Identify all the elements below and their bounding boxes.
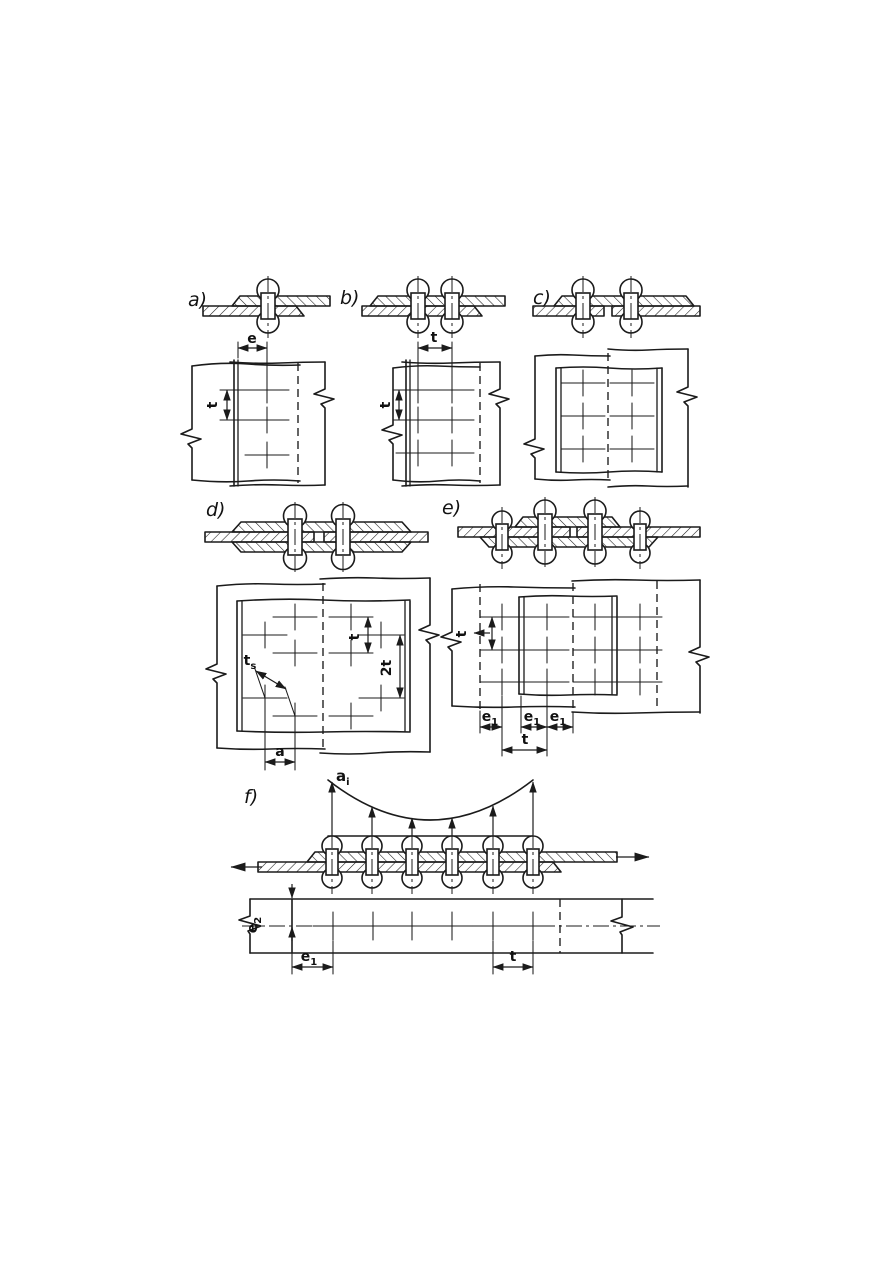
rivet-symbol	[584, 497, 606, 569]
dim-ts-label: ts	[244, 653, 257, 672]
rivet-cross	[430, 377, 474, 403]
dim-2t: 2t	[379, 635, 404, 698]
rivet-cross	[561, 370, 605, 396]
rivet-cross	[273, 604, 317, 630]
rivet-cross	[480, 604, 524, 630]
break-line-right	[419, 578, 439, 752]
rivet-cross	[430, 407, 474, 433]
dim-t-label: t	[431, 330, 438, 346]
dim-t-label: t	[205, 401, 221, 408]
break-line-left	[382, 368, 402, 480]
dim-e2-label: e2	[245, 917, 264, 934]
dim-a-label: a	[275, 744, 284, 760]
dim-t-left: t	[454, 617, 492, 650]
figure-e-label: e)	[442, 497, 461, 519]
load-distribution-diagram: ai	[328, 767, 533, 836]
dim-t-label: t	[522, 732, 529, 748]
rivet-cross	[243, 685, 287, 711]
rivet-cross	[525, 604, 569, 630]
figure-b-plan-view: t t	[378, 330, 509, 486]
figure-d-label: d)	[206, 499, 225, 521]
rivet-cross	[573, 669, 617, 695]
dim-t-label: t	[510, 949, 517, 965]
figure-d-cross-section	[205, 522, 428, 552]
rivet-cross	[245, 377, 289, 403]
figure-b-cross-section	[362, 296, 505, 316]
rivet-cross	[480, 637, 524, 663]
break-line-right	[689, 580, 709, 713]
rivet-symbol	[441, 276, 463, 338]
dim-e-label: e	[247, 331, 257, 347]
dim-t: t	[493, 941, 533, 974]
break-line-right	[489, 362, 509, 485]
rivet-cross	[525, 669, 569, 695]
rivet-cross	[245, 442, 289, 468]
rivet-cross	[359, 622, 403, 648]
dim-e1: e1	[292, 941, 333, 974]
dim-t-label: t	[454, 630, 470, 637]
dim-ts-diagonal: ts	[244, 653, 295, 716]
dim-e: e	[238, 331, 267, 377]
dim-2t-label: 2t	[379, 659, 395, 676]
rivet-cross	[618, 604, 662, 630]
figure-c-cross-section	[533, 296, 700, 316]
dim-t-label: t	[347, 633, 363, 640]
dims-bottom: e1 e1 e1 t	[480, 696, 573, 756]
figure-b-label: b)	[340, 287, 359, 309]
rivet-cross	[610, 370, 654, 396]
rivet-cross	[430, 440, 474, 466]
rivet-cross	[610, 436, 654, 462]
rivet-cross	[573, 637, 617, 663]
dim-e1-label: e1	[482, 709, 499, 728]
rivet-symbol	[257, 276, 279, 338]
rivet-cross	[525, 637, 569, 663]
dim-e1-label: e1	[524, 709, 541, 728]
rivet-symbol	[620, 276, 642, 338]
break-line-right	[677, 349, 697, 487]
load-curve	[328, 780, 533, 820]
figure-c: c)	[524, 287, 700, 487]
rivet-cross	[243, 622, 287, 648]
rivet-cross	[432, 912, 472, 940]
rivet-cross	[618, 637, 662, 663]
figure-f-cross-section	[231, 852, 649, 872]
figure-e: e)	[441, 497, 709, 756]
engineering-drawing: a) e t	[0, 0, 893, 1263]
rivet-cross	[573, 604, 617, 630]
rivet-cross	[359, 685, 403, 711]
break-line-right	[314, 362, 334, 485]
rivet-cross	[618, 669, 662, 695]
figure-d: d)	[205, 499, 439, 770]
rivet-symbol	[572, 276, 594, 338]
figure-f-plan-view: e2 e1 t	[239, 884, 660, 974]
dim-e1-label: e1	[550, 709, 567, 728]
break-line-left	[524, 356, 544, 479]
rivet-cross	[313, 912, 353, 940]
dim-t-left: t	[378, 390, 428, 420]
load-label: ai	[336, 767, 350, 788]
figure-a-plan-view: e t	[181, 331, 334, 486]
rivet-cross	[273, 640, 317, 666]
rivet-cross	[480, 669, 524, 695]
rivet-symbol	[534, 497, 556, 569]
dim-t-label: t	[378, 401, 394, 408]
dim-t-left: t	[205, 390, 246, 420]
rivet-cross	[513, 912, 553, 940]
figure-e-plan-view: t e1 e1 e1 t	[441, 580, 709, 756]
rivet-cross	[329, 640, 373, 666]
figure-f-label: f)	[244, 786, 258, 808]
rivet-cross	[329, 703, 373, 729]
document-page: a) e t	[0, 0, 893, 1263]
rivet-cross	[245, 407, 289, 433]
dim-t-top: t	[418, 330, 452, 377]
load-distribution-arrows	[332, 782, 533, 835]
break-line-left	[441, 589, 461, 706]
rivet-cross	[561, 436, 605, 462]
figure-c-plan-view	[524, 349, 697, 487]
rivet-cross	[329, 604, 373, 630]
figure-d-plan-view: ts t 2t a	[206, 578, 439, 770]
rivet-cross	[610, 403, 654, 429]
dim-a: a	[265, 711, 295, 770]
dim-e1-label: e1	[301, 949, 318, 968]
rivet-cross	[273, 703, 317, 729]
rivet-cross	[561, 403, 605, 429]
rivet-symbol	[407, 276, 429, 338]
break-line-left	[181, 366, 201, 480]
break-line-left	[206, 586, 226, 748]
rivet-cross	[473, 912, 513, 940]
rivet-cross	[353, 912, 393, 940]
cover-strap	[519, 596, 617, 696]
dim-e2: e2	[245, 884, 292, 941]
rivet-cross	[392, 912, 432, 940]
